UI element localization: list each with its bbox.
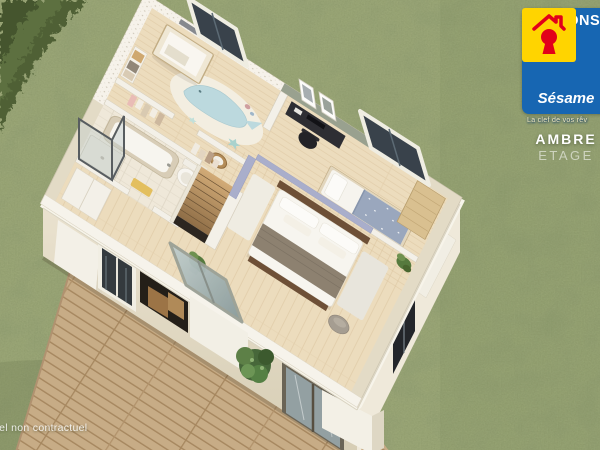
brand-logo-box: MAISONS Sésame xyxy=(522,8,600,114)
keyhole-house-icon xyxy=(539,33,593,87)
brand-name-bottom: Sésame xyxy=(522,90,600,107)
plan-model-name: AMBRE xyxy=(522,131,600,147)
brand-logo: MAISONS Sésame La clef de vos rêv AMBRE … xyxy=(522,8,600,163)
plan-level-label: ETAGE xyxy=(522,148,600,163)
floorplan-marketing-visual: MAISONS Sésame La clef de vos rêv AMBRE … xyxy=(0,0,600,450)
disclaimer-text: uel non contractuel xyxy=(0,422,87,434)
scene-render xyxy=(0,0,600,450)
brand-tagline: La clef de vos rêv xyxy=(522,117,600,124)
